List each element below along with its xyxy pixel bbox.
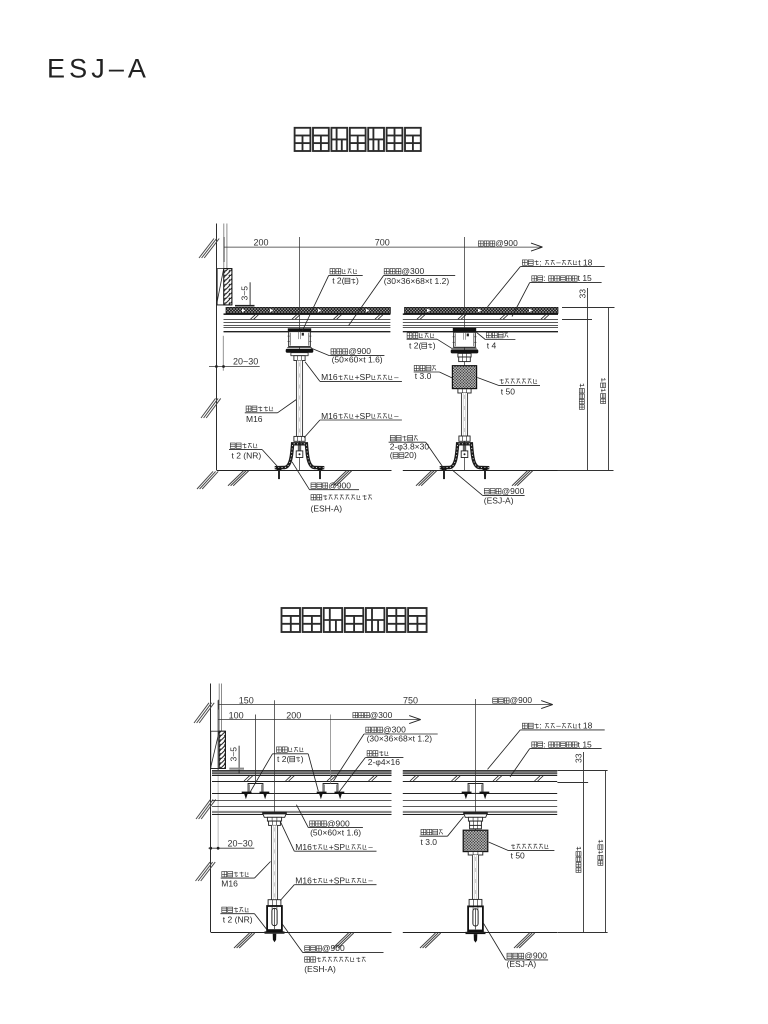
svg-text:(ESJ-A): (ESJ-A) [507,959,537,969]
svg-text::: : [539,721,541,731]
svg-text:3~5: 3~5 [229,747,239,762]
svg-text:+SP: +SP [329,842,346,852]
svg-text::: : [539,257,541,267]
svg-text:): ) [356,276,359,286]
svg-text:@900: @900 [495,238,518,248]
svg-text:20): 20) [404,450,416,460]
svg-text:t 50: t 50 [501,387,515,397]
svg-text:+SP: +SP [329,875,346,885]
svg-text:20~30: 20~30 [228,838,253,848]
svg-text:t 2(: t 2( [332,276,344,286]
svg-text:700: 700 [375,237,390,247]
svg-text:20~30: 20~30 [233,356,258,366]
svg-text:150: 150 [239,695,254,705]
svg-text:t 3.0: t 3.0 [415,371,432,381]
svg-text:+SP: +SP [355,372,372,382]
svg-text:t 4: t 4 [487,340,497,350]
svg-text:t 50: t 50 [511,851,525,861]
svg-text:750: 750 [403,695,418,705]
svg-text:t 15: t 15 [578,739,592,749]
svg-text:2-φ4×16: 2-φ4×16 [368,757,400,767]
svg-text:t 2 (NR): t 2 (NR) [223,914,253,924]
svg-text:M16: M16 [321,372,338,382]
svg-text:(ESH-A): (ESH-A) [311,503,343,513]
svg-text:200: 200 [254,237,269,247]
svg-text:t 18: t 18 [578,257,592,267]
svg-text:t 3.0: t 3.0 [421,837,438,847]
svg-text:@300: @300 [401,266,424,276]
svg-text:(50×60×t 1.6): (50×60×t 1.6) [310,828,361,838]
svg-text:t 18: t 18 [578,721,592,731]
svg-text:3~5: 3~5 [240,286,250,301]
svg-text:(: ( [390,450,393,460]
svg-text:ESJ–A: ESJ–A [47,54,150,84]
svg-text:t 2 (NR): t 2 (NR) [232,451,262,461]
svg-text:M16: M16 [321,411,338,421]
svg-text:M16: M16 [295,875,312,885]
svg-text:33: 33 [574,753,584,763]
svg-text:t 15: t 15 [578,273,592,283]
svg-text:M16: M16 [295,842,312,852]
svg-text:@900: @900 [322,943,345,953]
svg-text::: : [543,739,545,749]
svg-text:): ) [301,754,304,764]
svg-text:(ESH-A): (ESH-A) [304,964,336,974]
svg-text:): ) [433,340,436,350]
svg-text:(ESJ-A): (ESJ-A) [484,495,514,505]
svg-text:(30×36×68×t 1.2): (30×36×68×t 1.2) [384,276,450,286]
svg-text:33: 33 [578,289,588,299]
svg-text:M16: M16 [246,414,263,424]
svg-text:M16: M16 [221,879,238,889]
svg-text:100: 100 [229,711,244,721]
svg-text:t 2(: t 2( [409,340,421,350]
svg-text:200: 200 [286,711,301,721]
svg-text:@900: @900 [328,480,351,490]
svg-text:(30×36×68×t 1.2): (30×36×68×t 1.2) [367,733,433,743]
svg-text:@300: @300 [370,710,393,720]
svg-text:@900: @900 [510,695,533,705]
svg-text:+SP: +SP [355,411,372,421]
svg-text:t 2(: t 2( [277,754,289,764]
svg-text:(50×60×t 1.6): (50×60×t 1.6) [332,355,383,365]
svg-text::: : [543,273,545,283]
